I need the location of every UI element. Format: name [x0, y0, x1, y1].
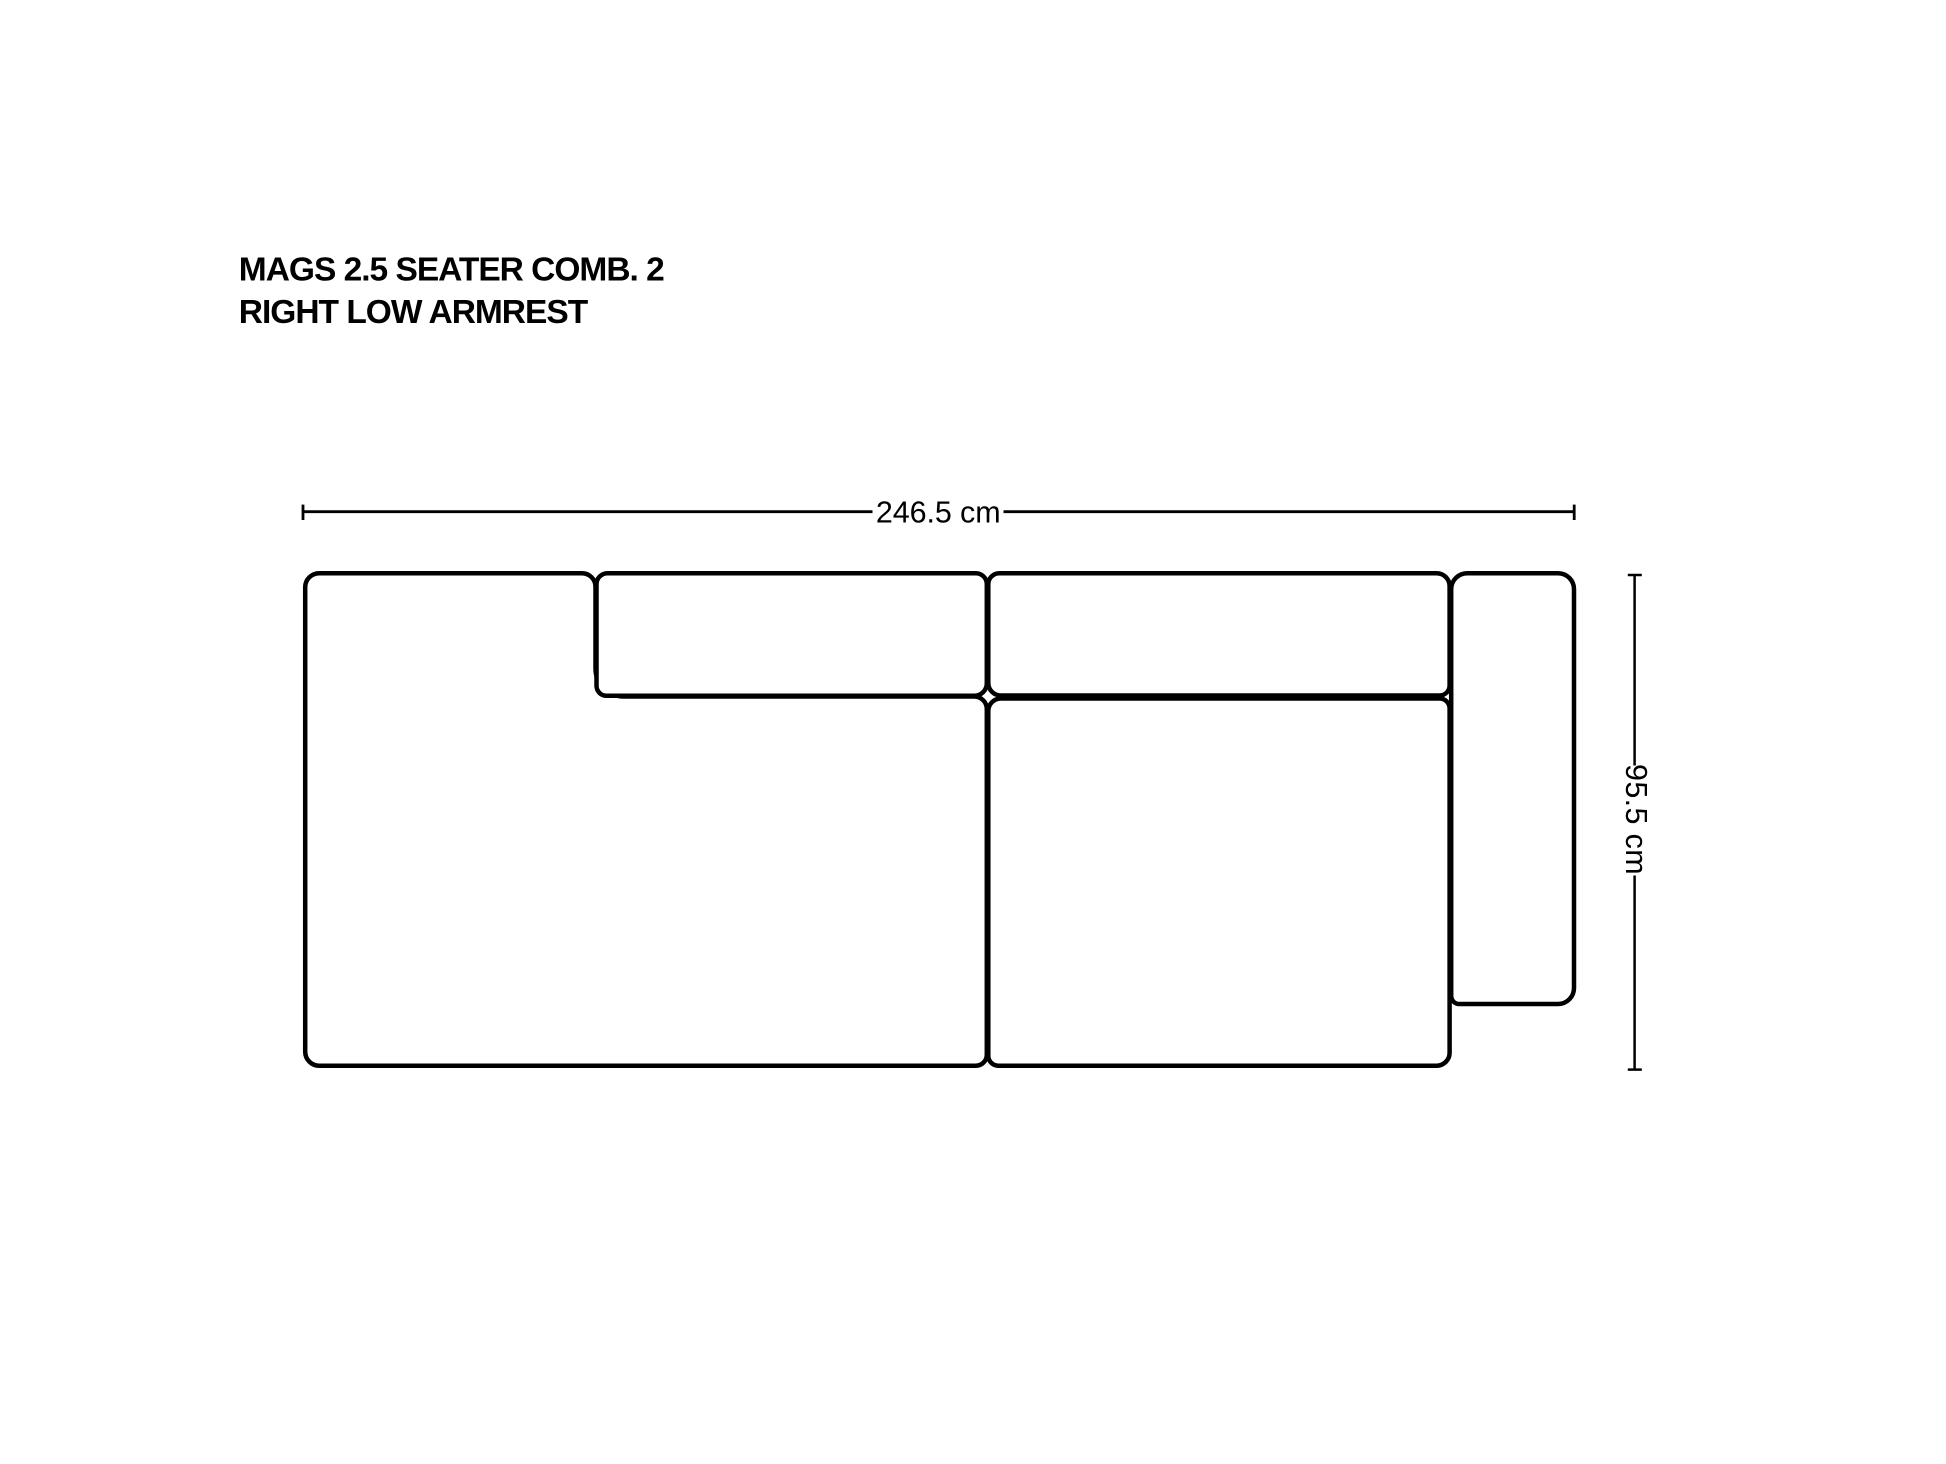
- svg-text:MAGS 2.5 SEATER COMB. 2: MAGS 2.5 SEATER COMB. 2: [239, 251, 664, 288]
- svg-text:95.5 cm: 95.5 cm: [1619, 764, 1653, 875]
- svg-text:246.5 cm: 246.5 cm: [876, 495, 1001, 529]
- svg-text:RIGHT LOW ARMREST: RIGHT LOW ARMREST: [239, 294, 589, 331]
